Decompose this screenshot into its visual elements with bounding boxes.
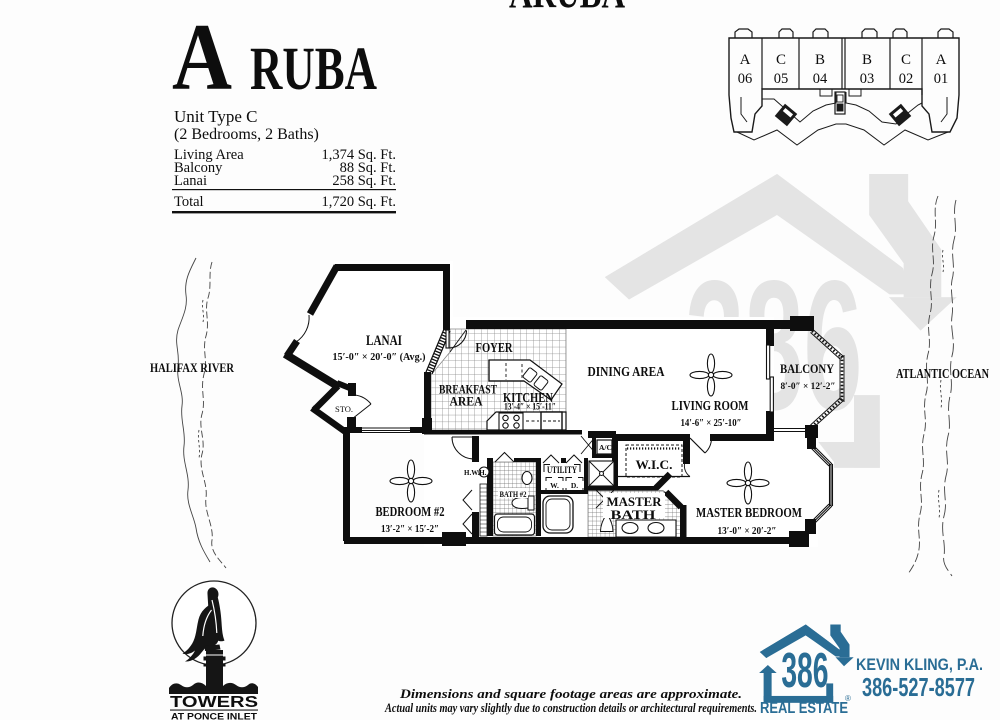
svg-text:13′-4″ × 15′-11″: 13′-4″ × 15′-11″: [504, 403, 556, 413]
svg-text:BATH: BATH: [611, 507, 656, 522]
svg-text:Dimensions and square footage: Dimensions and square footage areas are …: [399, 687, 742, 701]
svg-text:01: 01: [934, 71, 949, 87]
svg-text:BATH #2: BATH #2: [500, 489, 527, 499]
svg-text:B: B: [862, 52, 872, 68]
svg-text:STO.: STO.: [335, 404, 353, 414]
svg-text:H.W.H.: H.W.H.: [464, 469, 487, 477]
svg-text:BEDROOM #2: BEDROOM #2: [376, 504, 445, 519]
svg-text:14′-6″ × 25′-10″: 14′-6″ × 25′-10″: [681, 418, 742, 429]
svg-text:W.I.C.: W.I.C.: [636, 457, 673, 472]
svg-text:(2 Bedrooms, 2 Baths): (2 Bedrooms, 2 Baths): [174, 126, 319, 143]
svg-text:C: C: [776, 52, 786, 68]
svg-text:W.: W.: [550, 481, 559, 490]
svg-text:386-527-8577: 386-527-8577: [862, 672, 975, 702]
svg-text:1,720 Sq. Ft.: 1,720 Sq. Ft.: [321, 194, 396, 210]
svg-text:LANAI: LANAI: [366, 333, 402, 349]
svg-text:Total: Total: [174, 194, 204, 210]
svg-text:04: 04: [813, 71, 828, 87]
svg-text:258 Sq. Ft.: 258 Sq. Ft.: [332, 173, 396, 189]
svg-text:MASTER BEDROOM: MASTER BEDROOM: [696, 505, 802, 520]
svg-text:RUBA: RUBA: [250, 36, 377, 103]
svg-text:®: ®: [845, 694, 851, 703]
svg-text:B: B: [815, 52, 825, 68]
svg-text:05: 05: [774, 71, 789, 87]
svg-text:A/C: A/C: [599, 443, 612, 452]
svg-text:Lanai: Lanai: [174, 173, 207, 189]
svg-text:A: A: [936, 52, 947, 68]
svg-text:HALIFAX RIVER: HALIFAX RIVER: [150, 360, 234, 375]
svg-text:13′-0″ × 20′-2″: 13′-0″ × 20′-2″: [718, 526, 777, 537]
svg-text:BALCONY: BALCONY: [780, 362, 834, 376]
svg-text:ARUBA: ARUBA: [509, 0, 625, 17]
svg-text:TOWERS: TOWERS: [170, 694, 258, 711]
svg-text:ATLANTIC OCEAN: ATLANTIC OCEAN: [896, 366, 989, 381]
svg-text:A: A: [172, 4, 232, 110]
svg-text:Actual units may vary slightly: Actual units may vary slightly due to co…: [384, 701, 757, 715]
svg-text:8′-0″ × 12′-2″: 8′-0″ × 12′-2″: [781, 382, 836, 392]
svg-text:A: A: [740, 52, 751, 68]
svg-text:AT PONCE INLET: AT PONCE INLET: [171, 712, 257, 720]
svg-text:02: 02: [899, 71, 914, 87]
svg-text:DINING AREA: DINING AREA: [588, 364, 665, 379]
svg-text:AREA: AREA: [450, 394, 484, 409]
svg-text:REAL ESTATE: REAL ESTATE: [760, 700, 848, 717]
svg-text:06: 06: [738, 71, 753, 87]
svg-text:FOYER: FOYER: [476, 340, 513, 355]
svg-text:03: 03: [860, 71, 875, 87]
svg-text:LIVING ROOM: LIVING ROOM: [672, 398, 749, 413]
svg-text:15′-0″ × 20′-0″ (Avg.): 15′-0″ × 20′-0″ (Avg.): [333, 351, 426, 363]
svg-text:D.: D.: [571, 481, 578, 490]
svg-text:13′-2″ × 15′-2″: 13′-2″ × 15′-2″: [381, 524, 439, 535]
svg-text:Unit Type C: Unit Type C: [174, 107, 258, 126]
svg-text:UTILITY: UTILITY: [547, 465, 577, 475]
svg-text:C: C: [901, 52, 911, 68]
